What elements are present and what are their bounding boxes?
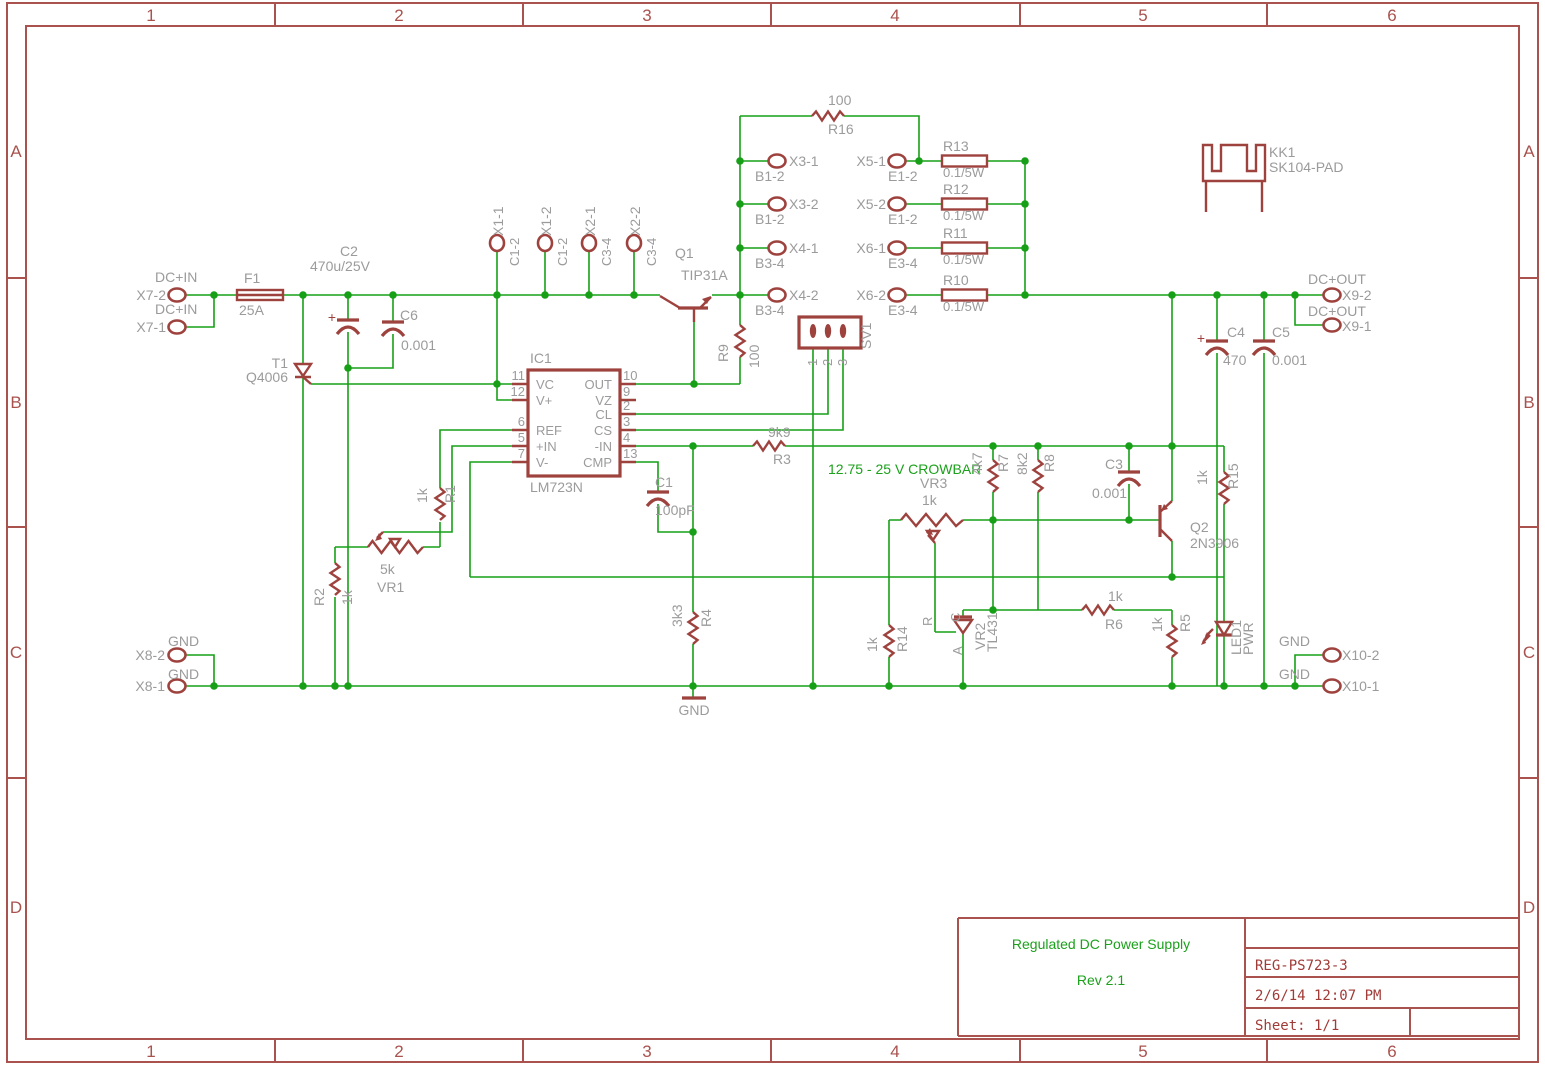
resistor-r6-symbol[interactable]: [1082, 606, 1114, 615]
net-label-dcout: DC+OUT: [1308, 303, 1366, 319]
part-name-r11: R11: [943, 225, 968, 241]
part-value-r8: 8k2: [1014, 452, 1030, 475]
ic1-pin-name: CMP: [583, 455, 612, 470]
part-value-c5: 0.001: [1272, 352, 1307, 368]
fuse-f1-symbol[interactable]: [237, 290, 283, 300]
pad-net: C3-4: [599, 238, 614, 266]
sv1-pin-1: 1: [805, 359, 820, 366]
schematic-canvas[interactable]: 1 2 3 4 5 6 1 2 3 4 5 6 A B C D A B C D: [0, 0, 1545, 1065]
part-name-r1: R1: [442, 485, 458, 503]
pad-net: B3-4: [755, 255, 785, 271]
grid-col-label: 2: [394, 1042, 403, 1061]
sv1-pin-3: 3: [835, 359, 850, 366]
ic1-pin-name: -IN: [595, 439, 612, 454]
pad-label: X3-1: [789, 153, 819, 169]
pad-x3-2: [769, 198, 786, 211]
ic1-pin-num: 7: [518, 446, 525, 461]
grid-row-label: C: [10, 643, 22, 662]
grid-col-label: 3: [642, 1042, 651, 1061]
pad-x8-2: [169, 649, 186, 662]
pad-label: X1-1: [490, 206, 506, 236]
part-name-r15: R15: [1225, 463, 1241, 489]
part-name-vr3: VR3: [920, 475, 947, 491]
part-value-r16: 100: [828, 92, 852, 108]
pad-label: X3-2: [789, 196, 819, 212]
grid-col-label: 6: [1387, 1042, 1396, 1061]
grid-col-label: 1: [146, 1042, 155, 1061]
part-value-t1: Q4006: [246, 369, 288, 385]
part-value-led1: PWR: [1240, 622, 1256, 655]
part-value-r1: 1k: [414, 487, 430, 503]
part-name-r5: R5: [1177, 614, 1193, 632]
resistor-r16-symbol[interactable]: [812, 112, 844, 121]
pad-label: X7-1: [136, 319, 166, 335]
title-block: Regulated DC Power Supply Rev 2.1 REG-PS…: [958, 918, 1519, 1036]
part-name-c4: C4: [1227, 324, 1245, 340]
part-value-ic1: LM723N: [530, 479, 583, 495]
part-value-q2: 2N3906: [1190, 535, 1239, 551]
crowbar-note: 12.75 - 25 V CROWBAR: [828, 461, 981, 477]
net-label-gnd: GND: [168, 666, 199, 682]
vr2-pin-c: C: [948, 613, 963, 622]
pad-x1-2: [538, 235, 552, 251]
title-rev: Rev 2.1: [1077, 972, 1125, 988]
ic1-pin-num: 6: [518, 414, 525, 429]
part-name-r9: R9: [715, 344, 731, 362]
grid-col-label: 5: [1138, 1042, 1147, 1061]
part-name-sv1: SV1: [858, 322, 874, 349]
pad-net: E1-2: [888, 168, 918, 184]
pad-label: X8-1: [135, 678, 165, 694]
pad-x5-2: [889, 198, 906, 211]
part-name-ic1: IC1: [530, 350, 552, 366]
part-value-r10: 0.1/5W: [943, 299, 985, 314]
pad-net: E3-4: [888, 302, 918, 318]
part-name-r13: R13: [943, 138, 969, 154]
resistor-r5-symbol[interactable]: [1168, 625, 1177, 657]
ic1-pin-name: VC: [536, 377, 554, 392]
pad-net: C3-4: [644, 238, 659, 266]
part-value-vr2: TL431: [984, 612, 1000, 652]
part-value-r13: 0.1/5W: [943, 165, 985, 180]
pad-label: X5-1: [856, 153, 886, 169]
part-name-q1: Q1: [675, 245, 694, 261]
grid-col-label: 5: [1138, 6, 1147, 25]
heatsink-kk1-symbol[interactable]: [1203, 145, 1265, 212]
part-value-vr1: 5k: [380, 561, 396, 577]
ic1-pin-name: CL: [595, 407, 612, 422]
ic1-pin-name: CS: [594, 423, 612, 438]
pad-label: X6-1: [856, 240, 886, 256]
part-name-r16: R16: [828, 121, 854, 137]
pad-label: X8-2: [135, 647, 165, 663]
pad-label: X5-2: [856, 196, 886, 212]
part-name-vr1: VR1: [377, 579, 404, 595]
pinheader-sv1-symbol[interactable]: [799, 317, 861, 348]
part-value-r3: 9k9: [768, 424, 791, 440]
pad-net: B1-2: [755, 168, 785, 184]
net-label-dcin: DC+IN: [155, 269, 197, 285]
part-name-r3: R3: [773, 451, 791, 467]
pad-label: X10-1: [1342, 678, 1380, 694]
part-value-r4: 3k3: [669, 604, 685, 627]
ic1-pin-name: V+: [536, 393, 552, 408]
sv1-pin-2: 2: [820, 359, 835, 366]
part-name-r10: R10: [943, 272, 969, 288]
pad-x7-2: [169, 289, 186, 302]
part-value-r2: 1k: [339, 589, 355, 605]
resistor-r9-symbol[interactable]: [736, 325, 745, 357]
grid-col-label: 1: [146, 6, 155, 25]
pad-net: B3-4: [755, 302, 785, 318]
grid-col-label: 4: [890, 1042, 899, 1061]
grid-col-label: 2: [394, 6, 403, 25]
part-value-c2: 470u/25V: [310, 258, 371, 274]
net-label-gnd: GND: [168, 633, 199, 649]
c4-plus-sign: +: [1197, 330, 1205, 346]
ic1-pin-name: REF: [536, 423, 562, 438]
capacitor-c2-symbol[interactable]: +: [328, 309, 359, 334]
pad-x10-1: [1324, 680, 1341, 693]
connector-pads[interactable]: [169, 155, 1341, 693]
transistor-q2-symbol[interactable]: [1160, 501, 1172, 541]
part-value-kk1: SK104-PAD: [1269, 159, 1343, 175]
resistor-r3-symbol[interactable]: [753, 442, 785, 451]
part-name-c3: C3: [1105, 456, 1123, 472]
part-value-r12: 0.1/5W: [943, 208, 985, 223]
part-name-r6: R6: [1105, 616, 1123, 632]
ic1-pin-num: 2: [623, 398, 630, 413]
pad-label: X4-2: [789, 287, 819, 303]
part-name-c5: C5: [1272, 324, 1290, 340]
part-name-f1: F1: [244, 270, 261, 286]
part-name-r12: R12: [943, 181, 969, 197]
pad-x3-1: [769, 155, 786, 168]
title-datetime: 2/6/14 12:07 PM: [1255, 988, 1381, 1004]
part-value-q1: TIP31A: [681, 267, 728, 283]
part-value-r5: 1k: [1149, 616, 1165, 632]
pad-label: X2-2: [627, 206, 643, 236]
part-name-r14: R14: [894, 626, 910, 652]
pad-net: E1-2: [888, 211, 918, 227]
net-label-gnd: GND: [1279, 666, 1310, 682]
part-value-r7: 4k7: [969, 452, 985, 475]
part-name-c2: C2: [340, 243, 358, 259]
pad-x9-2: [1324, 289, 1341, 302]
part-name-r8: R8: [1041, 454, 1057, 472]
pad-x6-2: [889, 289, 906, 302]
resistor-r4-symbol[interactable]: [689, 612, 698, 644]
pad-net: B1-2: [755, 211, 785, 227]
grid-row-label: A: [10, 142, 22, 161]
resistor-r2-symbol[interactable]: [331, 563, 340, 595]
ic1-pin-num: 13: [623, 446, 637, 461]
potentiometer-vr3-symbol[interactable]: [901, 514, 963, 543]
gnd-label: GND: [678, 702, 709, 718]
grid-row-label: A: [1523, 142, 1535, 161]
part-name-r4: R4: [698, 609, 714, 627]
capacitor-c3-symbol[interactable]: [1118, 472, 1140, 486]
grid-row-label: D: [1523, 898, 1535, 917]
ic1-pin-name: V-: [536, 455, 548, 470]
grid-col-label: 6: [1387, 6, 1396, 25]
part-value-r6: 1k: [1108, 588, 1124, 604]
pad-x2-2: [627, 235, 641, 251]
schematic-page: 1 2 3 4 5 6 1 2 3 4 5 6 A B C D A B C D: [0, 0, 1545, 1065]
part-value-c1: 100pF: [655, 502, 695, 518]
grid-row-label: C: [1523, 643, 1535, 662]
pad-net: C1-2: [555, 238, 570, 266]
vr2-pin-a: A: [950, 646, 965, 655]
part-value-c4: 470: [1223, 352, 1247, 368]
c2-plus-sign: +: [328, 309, 336, 325]
part-value-r15: 1k: [1194, 469, 1210, 485]
transistor-q1-symbol[interactable]: [660, 296, 711, 322]
title-project: Regulated DC Power Supply: [1012, 936, 1190, 952]
vr2-pin-r: R: [920, 617, 935, 626]
ic1-lm723-symbol[interactable]: [512, 370, 636, 476]
pad-x5-1: [889, 155, 906, 168]
ic1-pin-name: OUT: [585, 377, 613, 392]
part-name-r7: R7: [995, 454, 1011, 472]
part-value-r14: 1k: [864, 636, 880, 652]
part-name-kk1: KK1: [1269, 144, 1296, 160]
potentiometer-vr1-symbol[interactable]: [368, 532, 423, 553]
pad-x6-1: [889, 242, 906, 255]
net-label-dcin: DC+IN: [155, 301, 197, 317]
net-label-gnd: GND: [1279, 633, 1310, 649]
pad-x4-1: [769, 242, 786, 255]
ic1-pin-num: 11: [512, 368, 526, 383]
pad-label: X9-2: [1342, 287, 1372, 303]
ic1-pin-num: 5: [518, 430, 525, 445]
part-name-c1: C1: [655, 474, 673, 490]
ic1-pin-num: 3: [623, 414, 630, 429]
title-code: REG-PS723-3: [1255, 958, 1348, 974]
capacitor-c6-symbol[interactable]: [382, 322, 404, 336]
net-and-part-labels: DC+IN X7-2 DC+IN X7-1 GND X8-2 GND X8-1 …: [135, 92, 1379, 718]
wire-net[interactable]: [186, 116, 1323, 698]
pad-x2-1: [582, 235, 596, 251]
pad-label: X4-1: [789, 240, 819, 256]
part-name-c6: C6: [400, 307, 418, 323]
grid-row-label: B: [1523, 393, 1534, 412]
pad-label: X6-2: [856, 287, 886, 303]
part-name-r2: R2: [311, 588, 327, 606]
pad-label: X9-1: [1342, 318, 1372, 334]
pad-x9-1: [1324, 319, 1341, 332]
pad-x7-1: [169, 321, 186, 334]
grid-row-label: D: [10, 898, 22, 917]
ic1-pin-name: +IN: [536, 439, 557, 454]
part-name-q2: Q2: [1190, 519, 1209, 535]
ic1-pin-num: 4: [623, 430, 630, 445]
part-value-f1: 25A: [239, 302, 265, 318]
grid-col-label: 4: [890, 6, 899, 25]
part-value-r9: 100: [746, 344, 762, 368]
pad-label: X10-2: [1342, 647, 1380, 663]
ic1-pin-num: 9: [623, 384, 630, 399]
pad-label: X1-2: [538, 206, 554, 236]
part-value-c6: 0.001: [401, 337, 436, 353]
grid-col-label: 3: [642, 6, 651, 25]
pad-x1-1: [490, 235, 504, 251]
pad-net: E3-4: [888, 255, 918, 271]
pad-label: X2-1: [582, 206, 598, 236]
part-value-c3: 0.001: [1092, 485, 1127, 501]
ic1-pin-num: 12: [511, 384, 525, 399]
ic1-pin-name: VZ: [595, 393, 612, 408]
grid-row-label: B: [10, 393, 21, 412]
part-value-vr3: 1k: [922, 492, 938, 508]
title-sheet: Sheet: 1/1: [1255, 1018, 1339, 1034]
pad-net: C1-2: [507, 238, 522, 266]
ic1-pin-num: 10: [623, 368, 637, 383]
pad-x4-2: [769, 289, 786, 302]
part-value-r11: 0.1/5W: [943, 252, 985, 267]
pad-x10-2: [1324, 649, 1341, 662]
resistor-r14-symbol[interactable]: [885, 625, 894, 657]
net-label-dcout: DC+OUT: [1308, 271, 1366, 287]
